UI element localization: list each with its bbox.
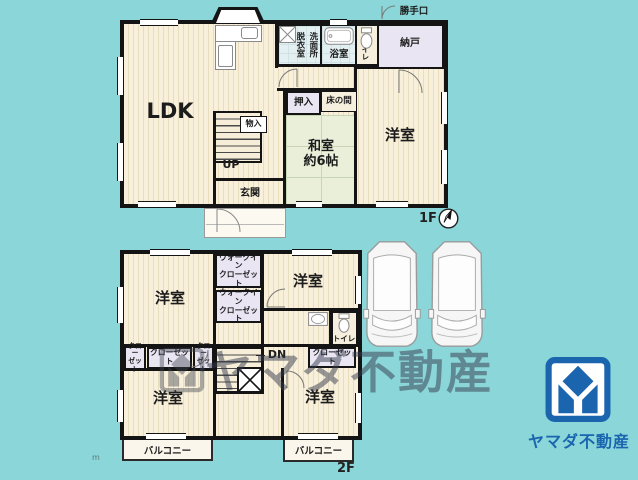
door-arc-katteguchi <box>381 5 397 20</box>
wic2-label: ウォークイン クローゼット <box>217 289 260 324</box>
washer-pan-icon <box>279 26 296 43</box>
window <box>441 92 448 124</box>
walkin-closet-2: ウォークイン クローゼット <box>215 290 262 323</box>
wic1-label: ウォークイン クローゼット <box>217 254 260 289</box>
scale-mark: m <box>92 453 100 462</box>
balcony-left: バルコニー <box>122 440 213 461</box>
closet-monoire: 物入 <box>240 116 267 133</box>
walkin-closet-1: ウォークイン クローゼット <box>215 254 262 288</box>
window <box>298 433 338 440</box>
brand-logo-icon <box>545 356 611 423</box>
door-arc-hall <box>278 68 298 88</box>
toilet-icon <box>337 313 351 334</box>
watermark-logo-icon <box>159 347 205 393</box>
katteguchi-label: 勝手口 <box>394 6 434 18</box>
window <box>146 433 186 440</box>
balcony-right-label: バルコニー <box>295 443 342 457</box>
window <box>355 276 362 304</box>
door-arc-ne-room <box>266 288 286 308</box>
floor2-tag: 2F <box>337 461 355 476</box>
toilet-icon <box>359 27 374 50</box>
kitchen-stove-icon <box>218 45 233 67</box>
yoshitsu-ne-label: 洋室 <box>284 272 332 292</box>
closet-a-label: クロー ゼット <box>126 343 144 373</box>
yoshitsu-nw-label: 洋室 <box>146 289 194 309</box>
wall <box>283 178 286 208</box>
closet-a: クロー ゼット <box>124 346 146 370</box>
wall <box>354 67 357 204</box>
oshiire-label: 押入 <box>294 98 313 109</box>
door-arc-entrance <box>216 208 241 233</box>
brand-text: ヤマダ不動産 <box>516 428 638 452</box>
window <box>150 249 190 256</box>
window <box>296 201 322 208</box>
window <box>138 201 176 208</box>
up-label: UP <box>214 158 248 172</box>
kitchen-bay-window <box>216 10 260 23</box>
washitsu-label: 和室 約6帖 <box>290 138 352 172</box>
closet-oshiire: 押入 <box>286 91 321 115</box>
window <box>292 249 332 256</box>
tokonoma-label: 床の間 <box>326 97 352 107</box>
door-arc-nando <box>398 69 423 94</box>
car-icon <box>363 238 421 351</box>
floor1-tag: 1F <box>419 211 437 226</box>
kitchen-sink-icon <box>241 27 258 39</box>
balcony-left-label: バルコニー <box>144 443 191 457</box>
compass-icon <box>437 207 460 230</box>
floor-plan-canvas: 物入 UP 押入 床の間 和室 約6帖 LDK 洋室 納戸 浴室 脱衣室 洗面所… <box>0 0 638 480</box>
window <box>140 19 178 26</box>
bath-label: 浴室 <box>322 49 356 61</box>
ldk-label: LDK <box>138 98 202 124</box>
basin-icon <box>308 312 328 326</box>
nando-label: 納戸 <box>390 37 430 50</box>
balcony-right: バルコニー <box>283 440 354 462</box>
window <box>117 390 124 422</box>
window <box>117 143 124 181</box>
yoshitsu-1f-label: 洋室 <box>378 127 422 145</box>
tokonoma: 床の間 <box>321 91 357 112</box>
monoire-label: 物入 <box>246 120 262 129</box>
car-icon <box>428 238 486 351</box>
senmen-label: 洗面所 <box>306 26 318 64</box>
window <box>330 19 347 26</box>
bathtub-icon <box>324 27 354 45</box>
genkan-label: 玄関 <box>228 187 272 201</box>
wall <box>277 64 379 67</box>
wall <box>275 24 278 68</box>
wall <box>213 178 285 181</box>
window <box>376 201 408 208</box>
watermark-text: ヤマダ不動産 <box>206 336 494 402</box>
window <box>441 150 448 184</box>
window <box>117 287 124 323</box>
window <box>117 57 124 95</box>
